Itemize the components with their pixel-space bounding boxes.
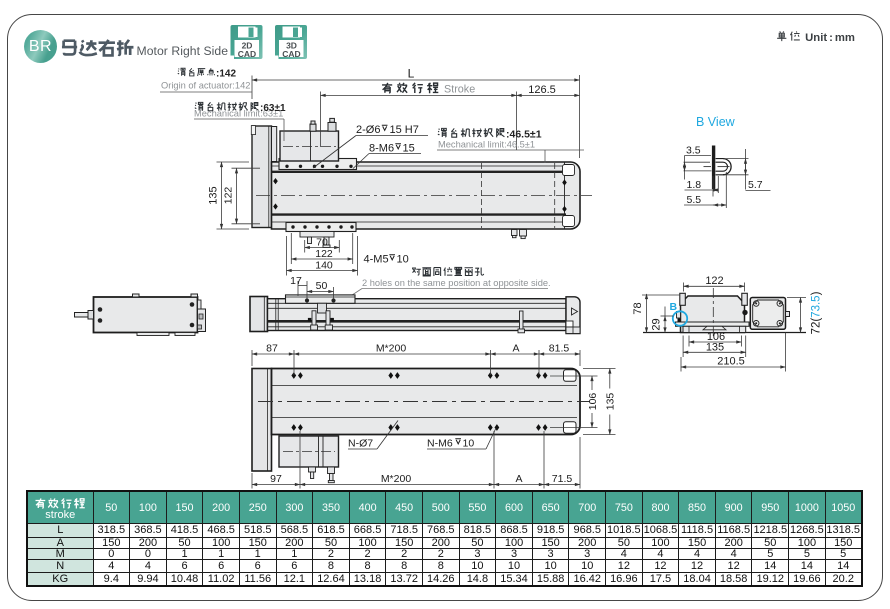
svg-text:87: 87 xyxy=(266,343,278,355)
svg-text:72(73.5): 72(73.5) xyxy=(811,291,823,334)
svg-text:Mechanical limit:46.5±1: Mechanical limit:46.5±1 xyxy=(438,140,535,150)
svg-text:Origin of actuator:142: Origin of actuator:142 xyxy=(161,81,250,91)
svg-text:135: 135 xyxy=(208,186,220,204)
svg-text:17: 17 xyxy=(290,275,302,287)
svg-text:4-M5: 4-M5 xyxy=(364,254,389,266)
svg-text:122: 122 xyxy=(705,275,723,287)
svg-text:1.8: 1.8 xyxy=(687,179,702,191)
svg-text:126.5: 126.5 xyxy=(528,84,556,96)
svg-text:5.7: 5.7 xyxy=(748,179,763,191)
svg-text:N-M6: N-M6 xyxy=(427,438,453,450)
svg-text:70: 70 xyxy=(316,237,328,249)
svg-text:8-M6: 8-M6 xyxy=(369,143,394,155)
svg-text::142: :142 xyxy=(216,69,236,80)
svg-text:71.5: 71.5 xyxy=(552,473,573,485)
svg-text:29: 29 xyxy=(651,318,663,330)
svg-text:81.5: 81.5 xyxy=(549,343,570,355)
svg-text:10: 10 xyxy=(397,254,409,266)
svg-text:106: 106 xyxy=(587,393,599,411)
svg-text:10: 10 xyxy=(463,438,475,450)
svg-text:N-Ø7: N-Ø7 xyxy=(348,438,373,450)
svg-text:L: L xyxy=(408,67,415,81)
svg-text:97: 97 xyxy=(270,473,282,485)
svg-text:2-Ø6: 2-Ø6 xyxy=(356,124,380,136)
svg-text:B: B xyxy=(670,301,678,313)
svg-text:15: 15 xyxy=(403,143,415,155)
svg-text:M*200: M*200 xyxy=(376,343,407,355)
svg-text:5.5: 5.5 xyxy=(687,194,702,206)
svg-text:15 H7: 15 H7 xyxy=(390,124,419,136)
svg-text:135: 135 xyxy=(706,341,724,353)
svg-text:A: A xyxy=(515,473,522,485)
svg-text:78: 78 xyxy=(632,302,644,314)
svg-text::46.5±1: :46.5±1 xyxy=(506,129,542,141)
svg-text:CAD: CAD xyxy=(282,49,300,59)
svg-text:B View: B View xyxy=(696,115,736,129)
svg-text::63±1: :63±1 xyxy=(260,103,286,114)
svg-text:210.5: 210.5 xyxy=(717,356,745,368)
svg-text:Stroke: Stroke xyxy=(444,84,475,96)
svg-text:M*200: M*200 xyxy=(381,473,412,485)
svg-text:50: 50 xyxy=(316,280,328,292)
svg-text:122: 122 xyxy=(315,248,333,260)
svg-text:122: 122 xyxy=(223,187,235,205)
svg-text:135: 135 xyxy=(605,393,617,411)
svg-text:2 holes on the same position a: 2 holes on the same position at opposite… xyxy=(362,278,551,288)
svg-text:3.5: 3.5 xyxy=(686,145,701,157)
svg-text:140: 140 xyxy=(315,260,333,272)
svg-text:CAD: CAD xyxy=(238,49,256,59)
svg-text:A: A xyxy=(512,343,519,355)
